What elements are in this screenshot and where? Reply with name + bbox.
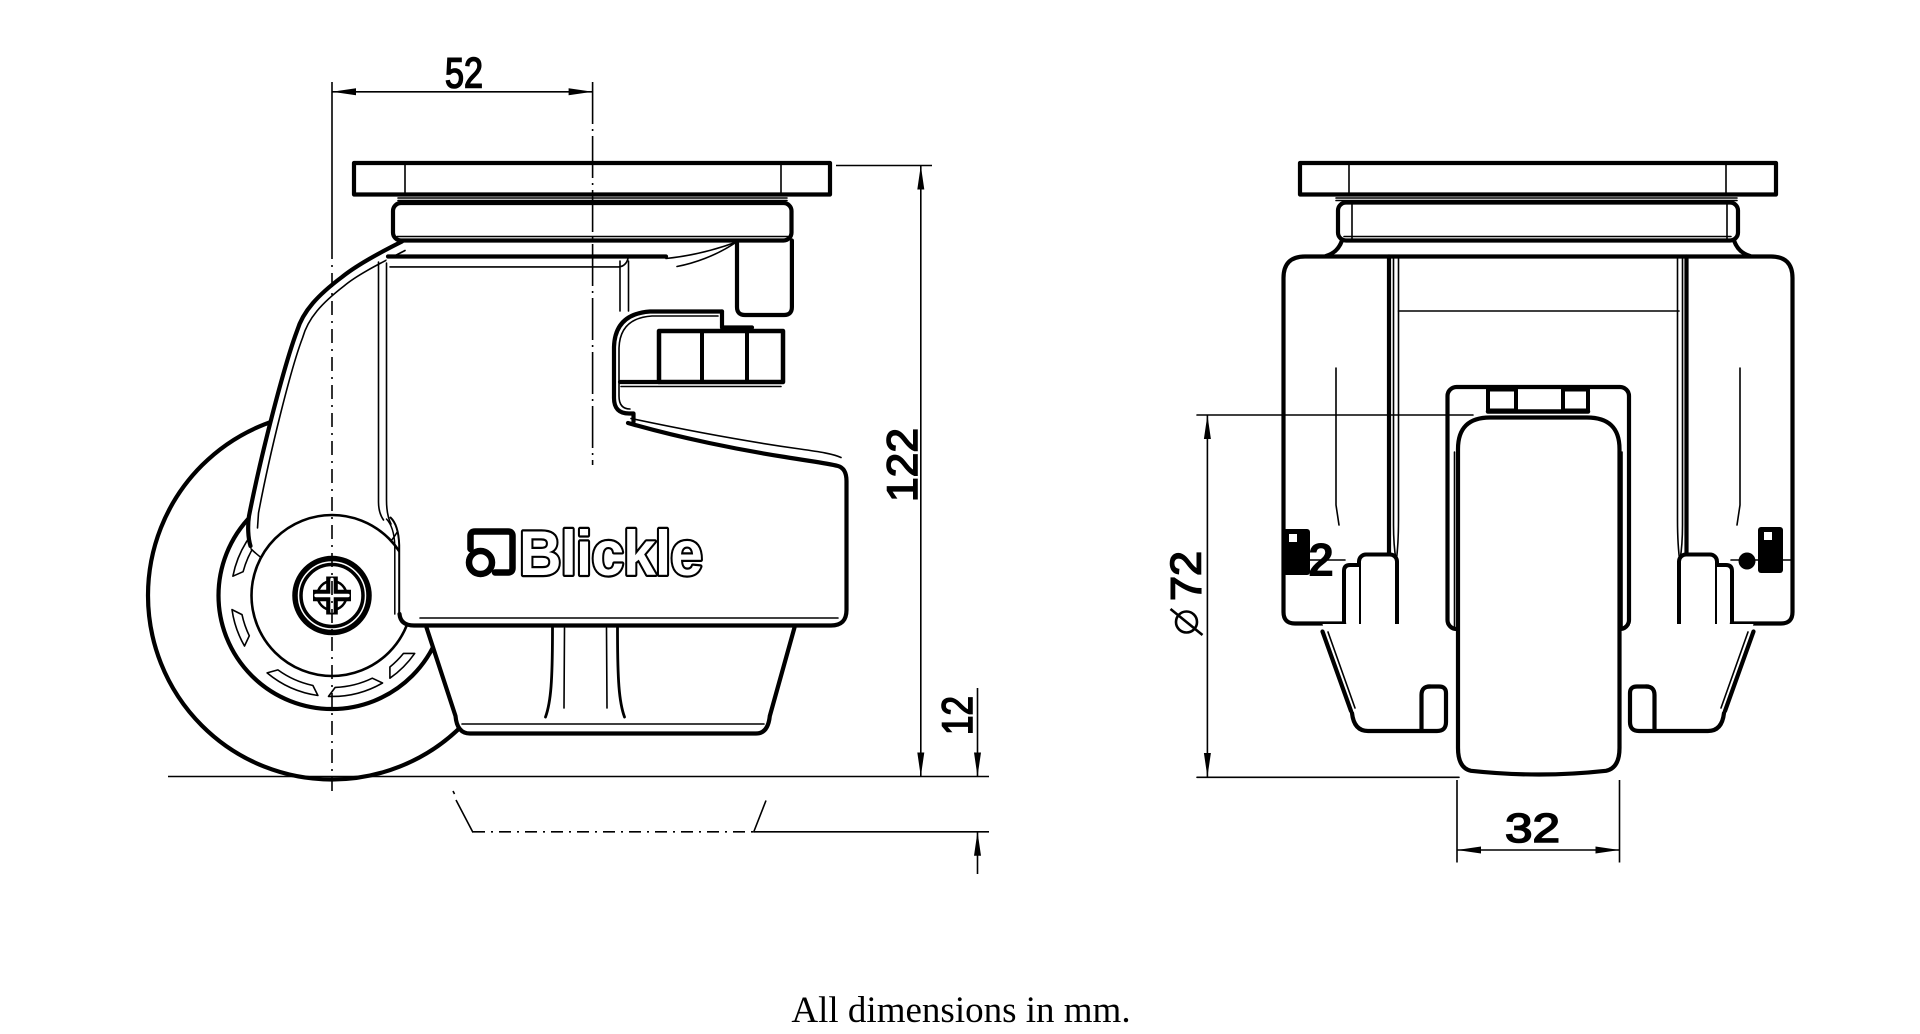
- svg-text:All dimensions in mm.: All dimensions in mm.: [791, 990, 1130, 1031]
- svg-text:2: 2: [1308, 533, 1334, 586]
- svg-text:Blickle: Blickle: [519, 519, 702, 589]
- svg-text:32: 32: [1505, 805, 1560, 851]
- svg-text:122: 122: [879, 428, 927, 502]
- svg-text:72: 72: [1163, 551, 1211, 601]
- svg-text:12: 12: [934, 696, 982, 735]
- svg-text:52: 52: [445, 50, 483, 98]
